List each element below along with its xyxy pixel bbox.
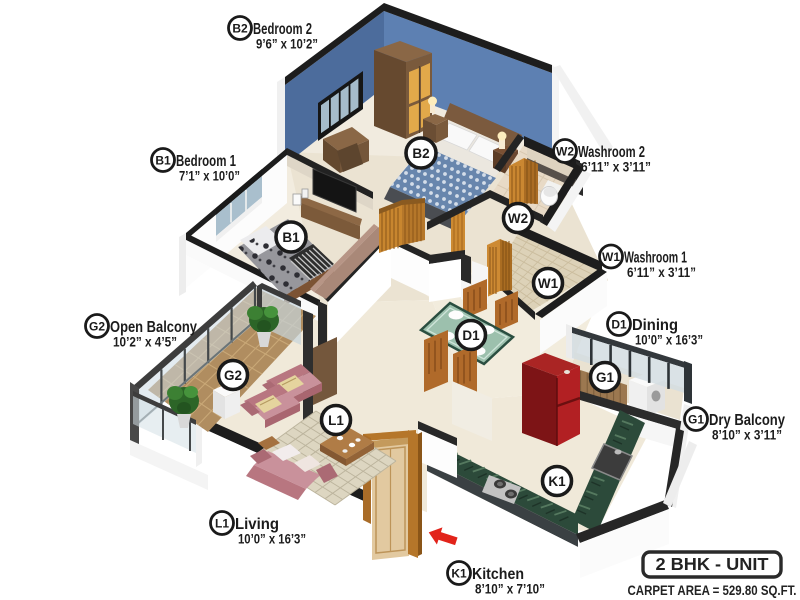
svg-text:G1: G1 [596,370,615,385]
svg-text:G2: G2 [224,368,242,383]
svg-text:9’6” x 10’2”: 9’6” x 10’2” [256,36,318,52]
svg-text:6’11” x 3’11”: 6’11” x 3’11” [581,159,651,175]
svg-text:W1: W1 [602,250,620,264]
svg-text:CARPET AREA = 529.80 SQ.FT.: CARPET AREA = 529.80 SQ.FT. [628,583,797,598]
svg-text:W2: W2 [556,144,574,158]
svg-text:K1: K1 [451,566,467,580]
svg-text:G1: G1 [688,412,704,426]
svg-text:7’1” x 10’0”: 7’1” x 10’0” [179,168,240,184]
svg-text:K1: K1 [548,474,566,489]
svg-text:D1: D1 [611,317,627,331]
svg-text:10’0” x 16’3”: 10’0” x 16’3” [238,531,306,547]
svg-text:B2: B2 [412,146,429,161]
svg-text:2 BHK - UNIT: 2 BHK - UNIT [656,554,769,574]
svg-text:6’11” x 3’11”: 6’11” x 3’11” [627,264,696,280]
svg-text:B2: B2 [232,21,248,35]
svg-text:W1: W1 [538,276,559,291]
svg-text:8’10” x 7’10”: 8’10” x 7’10” [475,581,545,597]
svg-text:D1: D1 [462,328,480,343]
svg-text:10’0” x 16’3”: 10’0” x 16’3” [635,332,703,348]
svg-text:B1: B1 [155,153,171,167]
svg-text:8’10” x 3’11”: 8’10” x 3’11” [712,427,782,443]
svg-text:10’2” x 4’5”: 10’2” x 4’5” [113,334,177,350]
svg-text:L1: L1 [328,413,344,428]
svg-text:L1: L1 [215,516,229,530]
svg-text:W2: W2 [508,211,528,226]
svg-text:B1: B1 [282,230,300,245]
svg-text:G2: G2 [89,319,105,333]
